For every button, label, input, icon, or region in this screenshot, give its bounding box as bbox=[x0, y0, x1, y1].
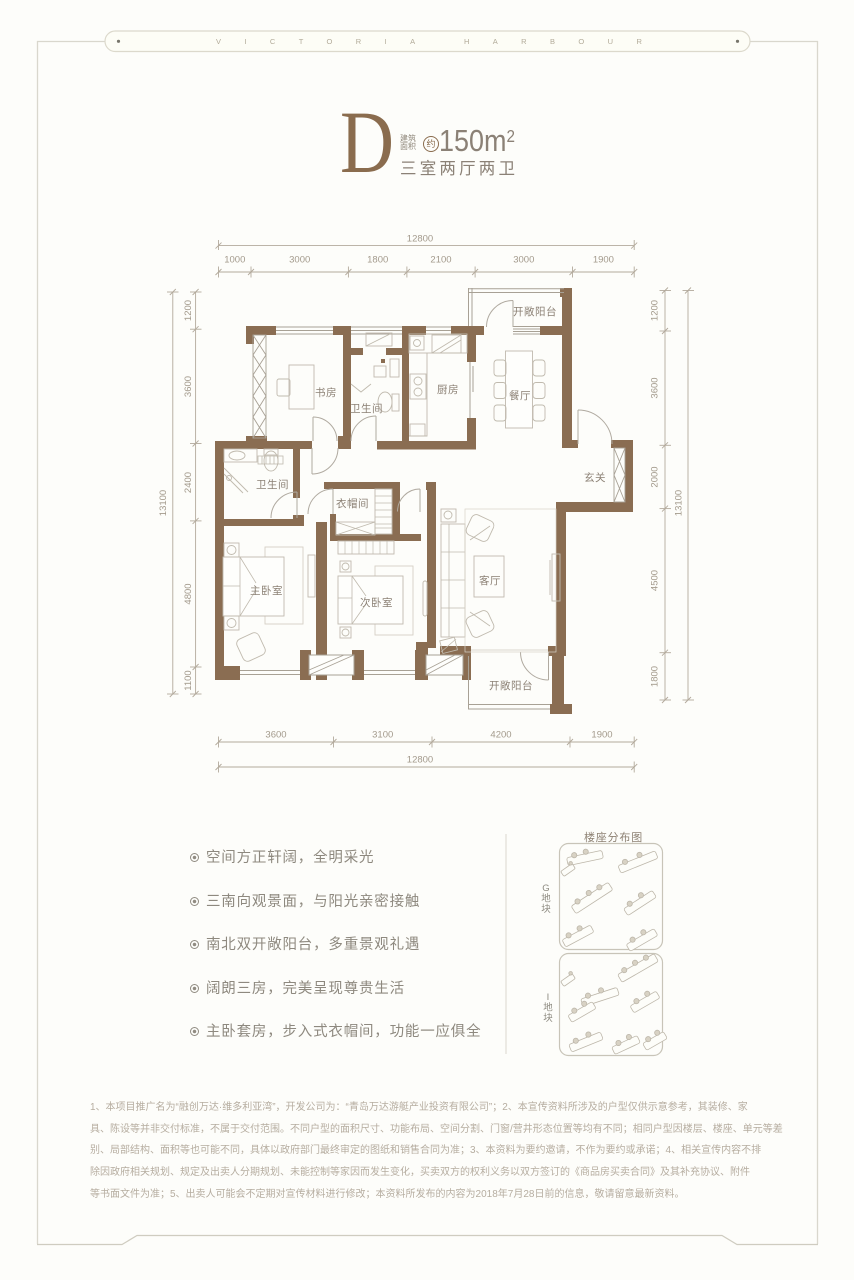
svg-text:G地块: G地块 bbox=[541, 883, 551, 915]
svg-text:I地块: I地块 bbox=[543, 992, 553, 1024]
svg-text:楼座分布图: 楼座分布图 bbox=[584, 830, 643, 844]
